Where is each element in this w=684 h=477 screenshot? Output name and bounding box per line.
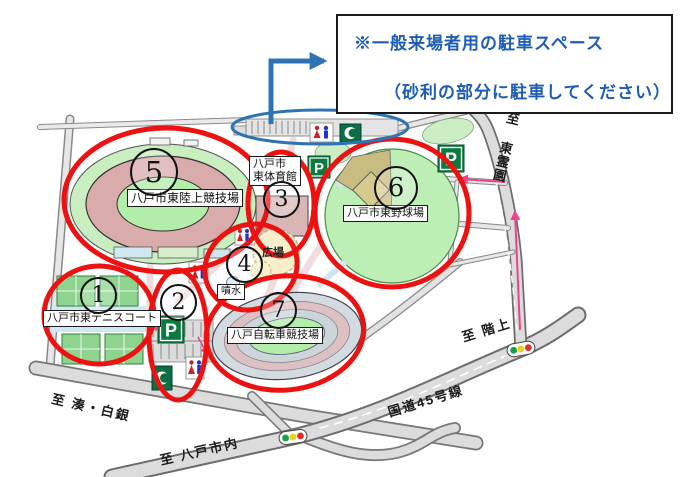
- label-fountain: 噴水: [217, 284, 245, 300]
- callout-arrow: [271, 61, 324, 124]
- callout-line2: （砂利の部分に駐車してください）: [384, 78, 671, 103]
- callout-line1: ※一般来場者用の駐車スペース: [354, 29, 604, 54]
- label-velodrome: 八戸自転車競技場: [227, 327, 323, 344]
- park-map: P P P: [0, 0, 684, 477]
- restroom-icon-top: [310, 123, 333, 142]
- svg-text:P: P: [165, 321, 177, 341]
- marker-5: 5: [130, 148, 178, 196]
- svg-text:P: P: [314, 160, 324, 177]
- phone-icon-top: [340, 124, 361, 142]
- marker-6: 6: [374, 166, 418, 210]
- marker-3: 3: [263, 181, 300, 218]
- marker-7: 7: [260, 292, 297, 329]
- callout-box: ※一般来場者用の駐車スペース （砂利の部分に駐車してください）: [336, 14, 673, 114]
- label-gymnasium-line1: 八戸市: [253, 158, 297, 171]
- traffic-light-east: [506, 340, 536, 358]
- label-plaza: 広場: [262, 244, 284, 260]
- marker-1: 1: [80, 277, 117, 314]
- marker-4: 4: [226, 246, 263, 283]
- marker-2: 2: [160, 284, 197, 321]
